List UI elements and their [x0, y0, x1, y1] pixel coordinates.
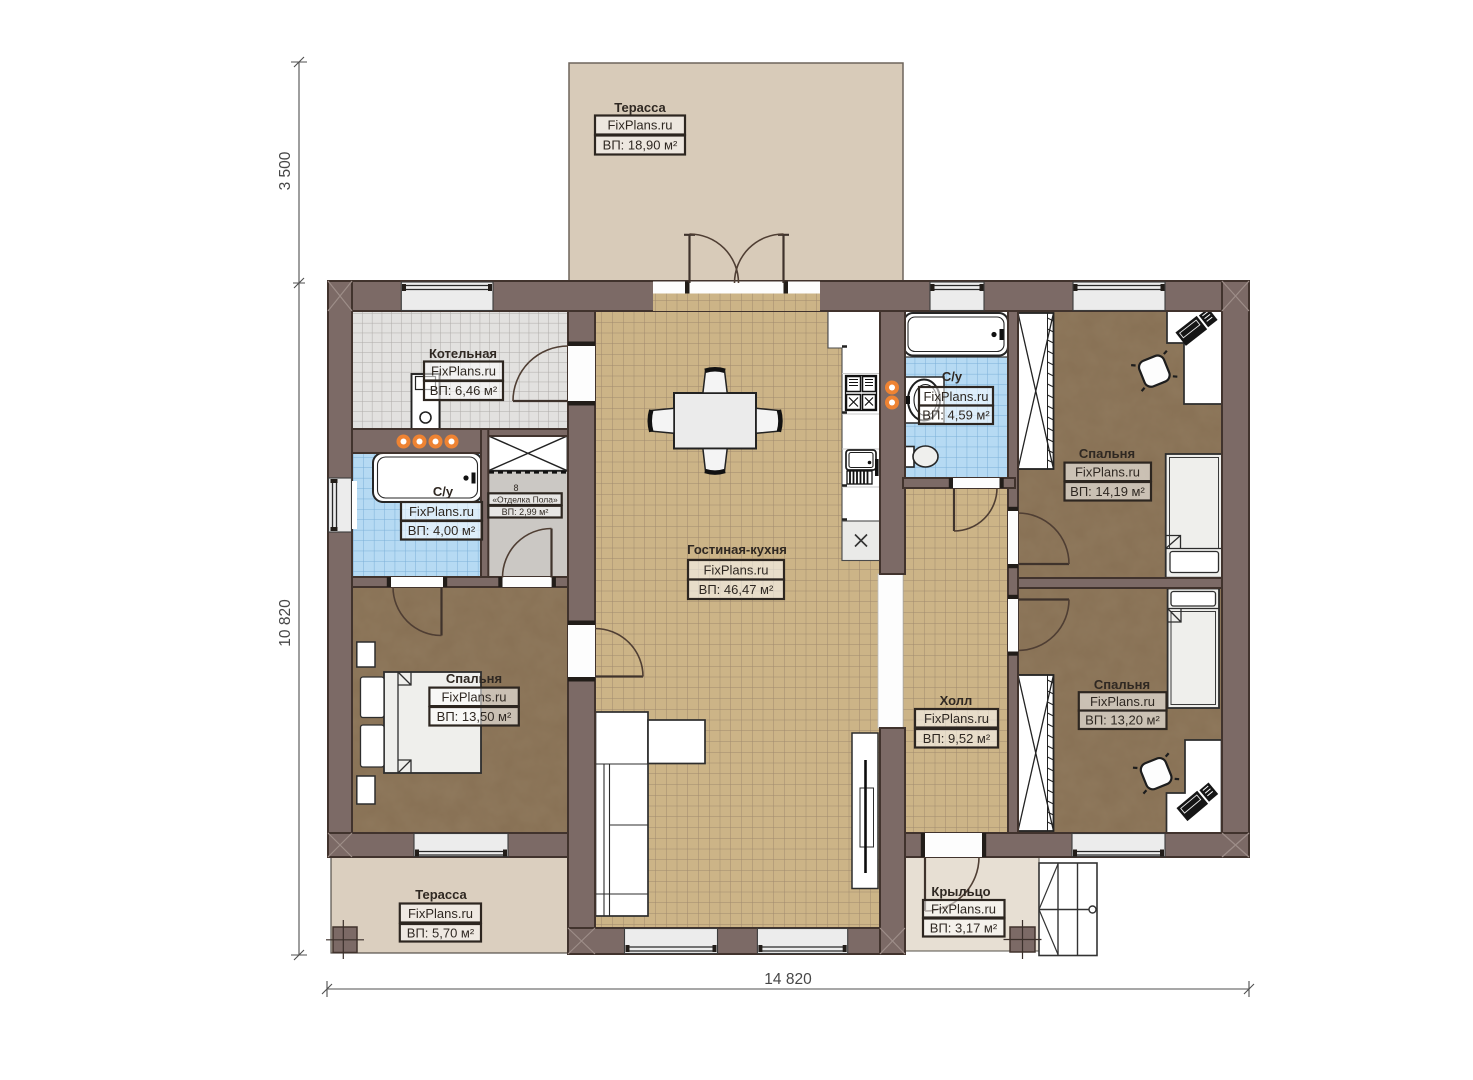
svg-text:Терасса: Терасса: [415, 887, 467, 902]
svg-text:ВП: 13,20 м²: ВП: 13,20 м²: [1085, 713, 1160, 728]
svg-text:С/у: С/у: [942, 369, 963, 384]
svg-text:ВП: 9,52 м²: ВП: 9,52 м²: [923, 731, 991, 746]
svg-text:14 820: 14 820: [764, 971, 812, 988]
svg-text:8: 8: [513, 483, 518, 493]
svg-text:FixPlans.ru: FixPlans.ru: [607, 118, 672, 133]
svg-text:3 500: 3 500: [277, 151, 294, 190]
svg-text:Терасса: Терасса: [614, 100, 666, 115]
svg-text:«Отделка Пола»: «Отделка Пола»: [492, 494, 558, 504]
svg-text:ВП: 13,50 м²: ВП: 13,50 м²: [437, 709, 512, 724]
svg-text:ВП: 46,47 м²: ВП: 46,47 м²: [699, 582, 774, 597]
svg-text:FixPlans.ru: FixPlans.ru: [703, 563, 768, 578]
svg-text:Гостиная-кухня: Гостиная-кухня: [687, 542, 787, 557]
svg-text:Спальня: Спальня: [446, 671, 502, 686]
svg-text:FixPlans.ru: FixPlans.ru: [431, 364, 496, 379]
svg-text:FixPlans.ru: FixPlans.ru: [923, 389, 988, 404]
svg-text:ВП: 18,90 м²: ВП: 18,90 м²: [603, 138, 678, 153]
svg-text:FixPlans.ru: FixPlans.ru: [931, 902, 996, 917]
svg-text:10 820: 10 820: [277, 599, 294, 647]
svg-text:FixPlans.ru: FixPlans.ru: [1075, 465, 1140, 480]
svg-text:Спальня: Спальня: [1079, 446, 1135, 461]
svg-text:FixPlans.ru: FixPlans.ru: [441, 690, 506, 705]
svg-text:FixPlans.ru: FixPlans.ru: [409, 504, 474, 519]
svg-text:ВП: 14,19 м²: ВП: 14,19 м²: [1070, 484, 1145, 499]
svg-text:Спальня: Спальня: [1094, 677, 1150, 692]
svg-text:FixPlans.ru: FixPlans.ru: [1090, 694, 1155, 709]
svg-text:ВП: 4,59 м²: ВП: 4,59 м²: [922, 408, 990, 423]
svg-text:ВП: 2,99 м²: ВП: 2,99 м²: [502, 507, 549, 517]
svg-text:ВП: 4,00 м²: ВП: 4,00 м²: [408, 523, 476, 538]
svg-text:Котельная: Котельная: [429, 346, 497, 361]
svg-text:FixPlans.ru: FixPlans.ru: [924, 711, 989, 726]
svg-text:FixPlans.ru: FixPlans.ru: [408, 906, 473, 921]
svg-text:ВП: 5,70 м²: ВП: 5,70 м²: [407, 926, 475, 941]
svg-text:ВП: 3,17 м²: ВП: 3,17 м²: [930, 921, 998, 936]
svg-text:ВП: 6,46 м²: ВП: 6,46 м²: [430, 383, 498, 398]
svg-text:Крыльцо: Крыльцо: [931, 884, 990, 899]
svg-text:С/у: С/у: [433, 484, 454, 499]
svg-text:Холл: Холл: [940, 693, 973, 708]
